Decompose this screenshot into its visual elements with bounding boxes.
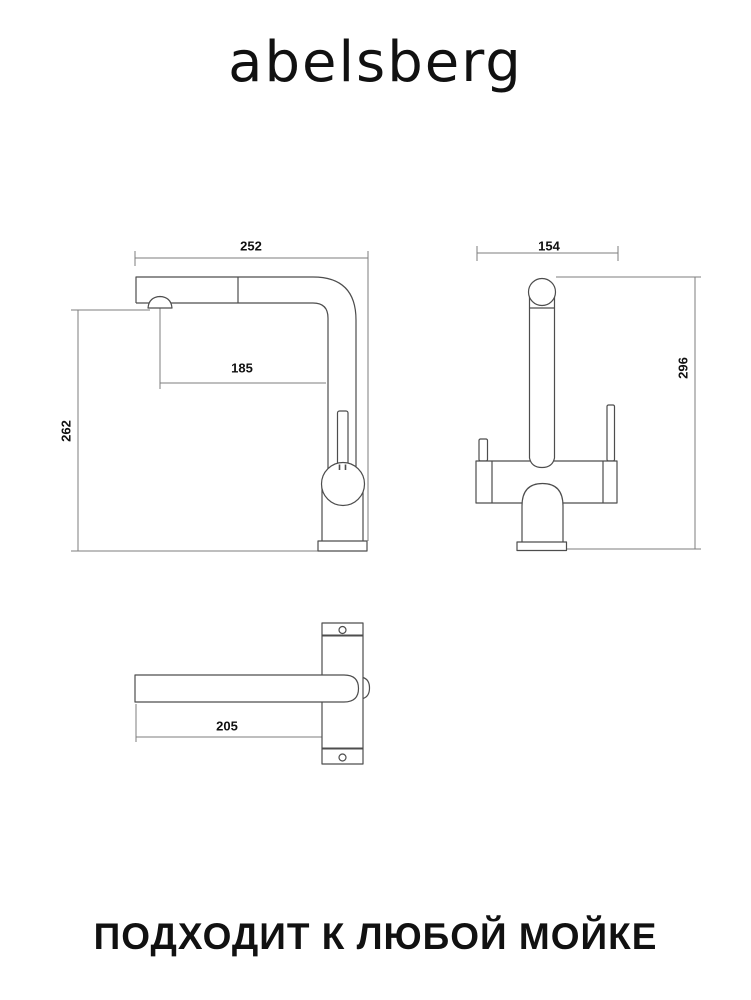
top-view-drawing — [135, 623, 370, 764]
top-side-bump — [363, 678, 370, 699]
front-spout-column — [530, 297, 555, 468]
dim-label-front-height: 296 — [676, 357, 691, 379]
side-base-plate — [318, 541, 367, 551]
aerator-bump — [148, 297, 172, 309]
dim-label-front-width: 154 — [538, 239, 560, 254]
dim-label-side-reach: 185 — [231, 361, 253, 376]
front-bell-housing — [522, 484, 563, 543]
side-view-drawing — [136, 277, 367, 551]
dim-296-lines — [556, 277, 701, 549]
front-right-lever — [607, 405, 615, 461]
dim-label-side-top-width: 252 — [240, 239, 262, 254]
technical-drawing — [0, 0, 751, 1000]
side-joint-circle — [322, 463, 365, 506]
spout-inner-edge — [136, 303, 328, 484]
dim-262-lines — [71, 310, 318, 551]
dim-label-top-depth: 205 — [216, 719, 238, 734]
dim-label-side-height: 262 — [59, 420, 74, 442]
dim-185-lines — [160, 308, 326, 389]
footer-slogan: ПОДХОДИТ К ЛЮБОЙ МОЙКЕ — [0, 916, 751, 958]
top-spout-capsule — [135, 675, 359, 702]
front-left-lever — [479, 439, 488, 461]
front-spout-head — [529, 279, 556, 306]
front-view-drawing — [476, 279, 617, 551]
side-lever-handle — [338, 411, 349, 465]
front-base-plate — [517, 542, 567, 551]
